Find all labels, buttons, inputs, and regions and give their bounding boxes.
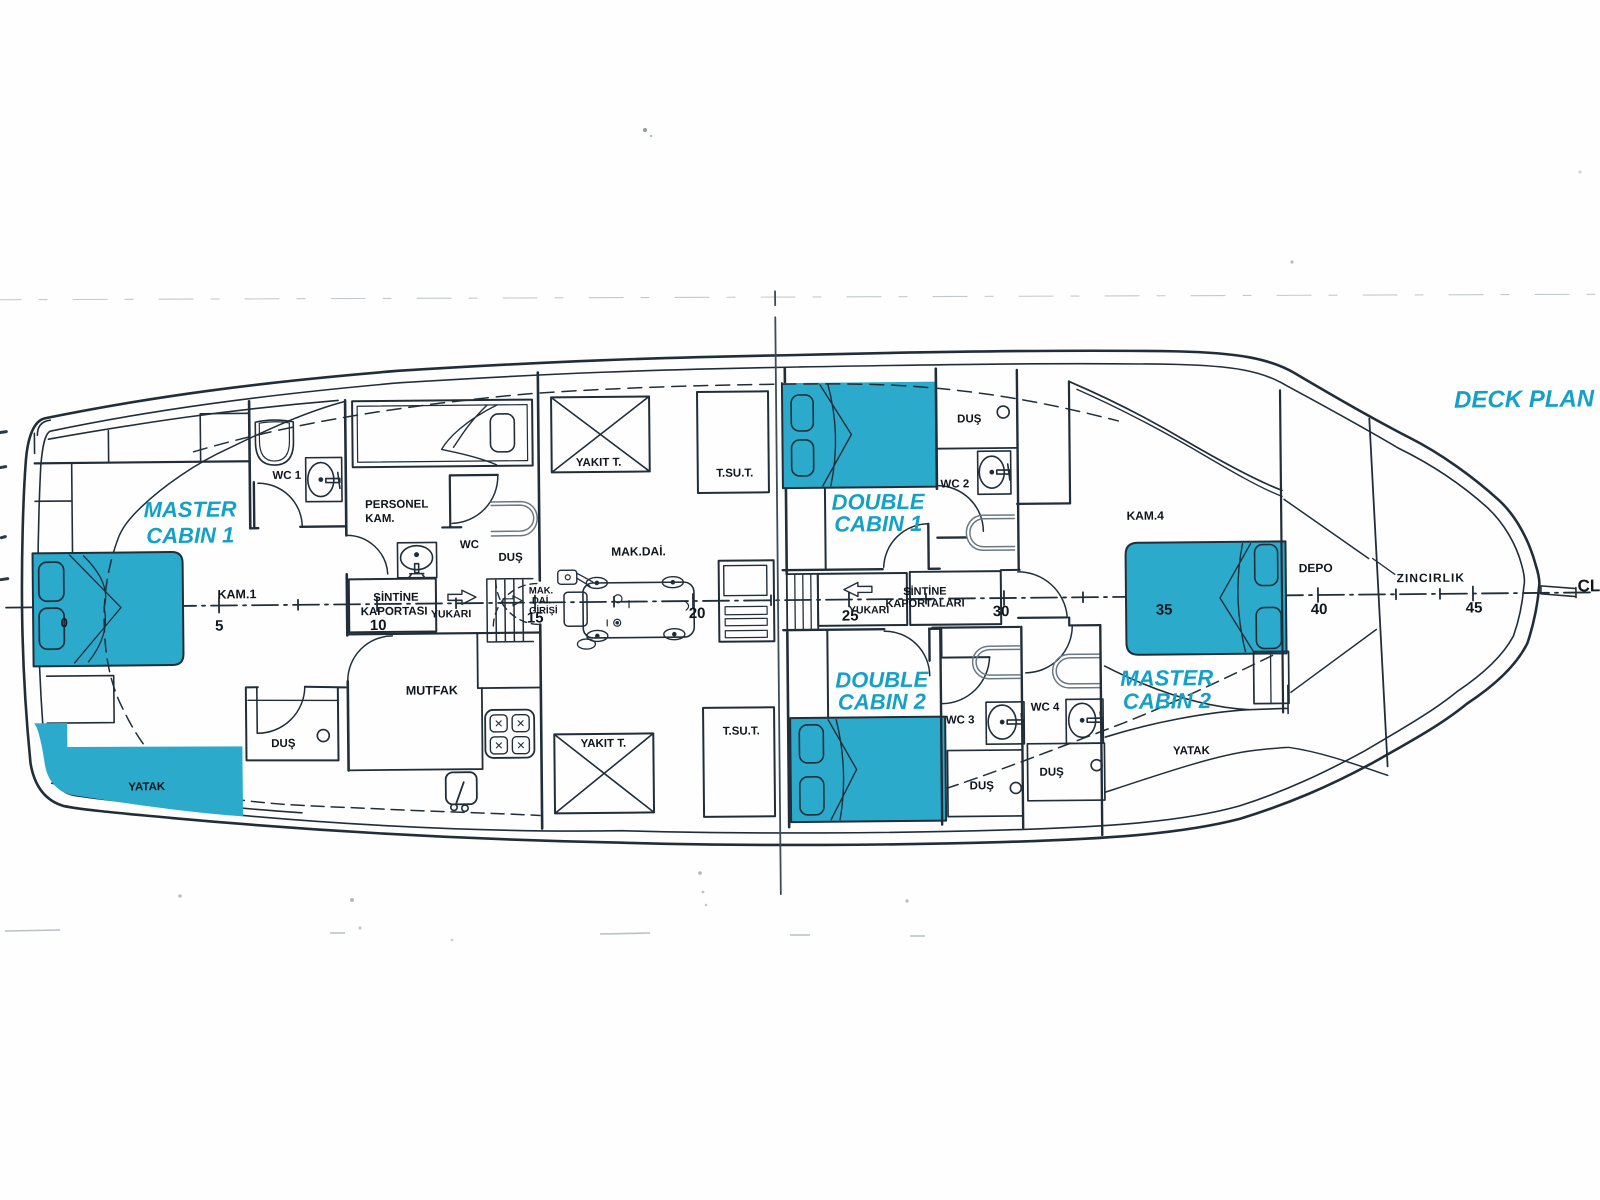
svg-text:45: 45 bbox=[1466, 599, 1483, 616]
svg-text:YATAK: YATAK bbox=[128, 781, 166, 793]
svg-text:T.SU.T.: T.SU.T. bbox=[716, 467, 753, 479]
svg-text:PERSONEL: PERSONEL bbox=[365, 499, 428, 512]
svg-text:YUKARI: YUKARI bbox=[431, 608, 471, 620]
svg-text:DUŞ: DUŞ bbox=[970, 780, 995, 792]
svg-text:YATAK: YATAK bbox=[1173, 745, 1211, 757]
svg-text:SİNTİNE: SİNTİNE bbox=[373, 591, 419, 604]
svg-text:WC 4: WC 4 bbox=[1031, 702, 1060, 714]
svg-text:SİNTİNE: SİNTİNE bbox=[903, 585, 947, 598]
svg-text:KAPORTALARI: KAPORTALARI bbox=[885, 597, 964, 610]
svg-text:YUKARI: YUKARI bbox=[849, 604, 889, 616]
svg-text:DUŞ: DUŞ bbox=[1039, 766, 1064, 778]
svg-text:WC: WC bbox=[460, 539, 479, 551]
svg-text:0: 0 bbox=[60, 615, 67, 630]
svg-text:MASTER: MASTER bbox=[1120, 665, 1213, 691]
svg-text:DEPO: DEPO bbox=[1299, 561, 1333, 575]
svg-text:KAM.1: KAM.1 bbox=[217, 587, 256, 601]
svg-text:ZINCIRLIK: ZINCIRLIK bbox=[1397, 571, 1465, 586]
svg-text:WC 1: WC 1 bbox=[272, 470, 301, 482]
svg-text:YAKIT T.: YAKIT T. bbox=[576, 457, 622, 469]
svg-text:WC 3: WC 3 bbox=[946, 714, 975, 726]
svg-text:GİRİŞİ: GİRİŞİ bbox=[529, 605, 558, 616]
svg-text:KAM.4: KAM.4 bbox=[1126, 509, 1164, 523]
svg-text:T.SU.T.: T.SU.T. bbox=[723, 725, 760, 737]
svg-text:CABIN 2: CABIN 2 bbox=[1123, 688, 1212, 714]
svg-text:MAK.DAİ.: MAK.DAİ. bbox=[611, 543, 666, 559]
svg-text:10: 10 bbox=[370, 617, 387, 634]
svg-text:KAPORTASI: KAPORTASI bbox=[361, 606, 428, 619]
svg-text:40: 40 bbox=[1311, 601, 1328, 618]
svg-text:DUŞ: DUŞ bbox=[498, 552, 523, 564]
svg-text:DUŞ: DUŞ bbox=[271, 738, 296, 750]
svg-text:DUŞ: DUŞ bbox=[957, 413, 982, 425]
svg-text:YAKIT T.: YAKIT T. bbox=[581, 738, 627, 750]
svg-text:KAM.: KAM. bbox=[365, 513, 395, 525]
svg-text:MUTFAK: MUTFAK bbox=[406, 683, 458, 697]
svg-text:5: 5 bbox=[215, 618, 224, 635]
svg-text:20: 20 bbox=[689, 605, 706, 622]
svg-text:35: 35 bbox=[1156, 601, 1173, 618]
svg-text:CL: CL bbox=[1577, 576, 1600, 595]
svg-text:30: 30 bbox=[993, 603, 1010, 620]
svg-text:CABIN 1: CABIN 1 bbox=[834, 511, 922, 537]
svg-text:DECK PLAN: DECK PLAN bbox=[1454, 385, 1595, 413]
svg-text:MASTER: MASTER bbox=[144, 496, 237, 522]
svg-text:CABIN 1: CABIN 1 bbox=[146, 522, 234, 548]
svg-text:CABIN 2: CABIN 2 bbox=[838, 689, 927, 715]
svg-text:WC 2: WC 2 bbox=[940, 478, 969, 490]
